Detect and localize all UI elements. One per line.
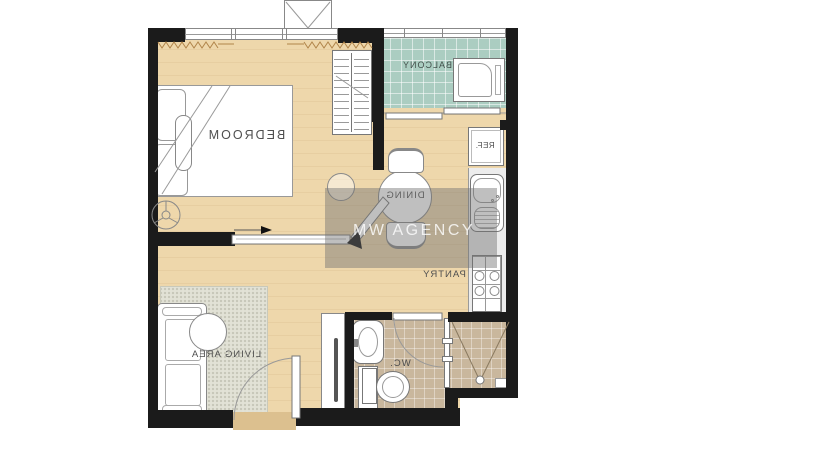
balcony-label: BALCONY: [396, 60, 458, 70]
living-area-label: LIVING AREA: [190, 349, 262, 360]
entrance-door-arc: [234, 358, 296, 420]
balcony-sliding-door-leaf: [444, 108, 500, 114]
floor-plan-page: REF.: [0, 0, 815, 465]
shower-slope-line: [481, 322, 509, 379]
stove-burner: [475, 272, 484, 281]
pantry-label: PANTRY: [420, 269, 468, 280]
fan-hub: [162, 211, 170, 219]
watermark-text: MW AGENCY: [353, 222, 475, 240]
ac-symbol-line: [308, 2, 330, 28]
slide-direction-arrow: [261, 226, 272, 234]
wc-label: WC.: [382, 358, 418, 369]
curtain-symbol: [304, 42, 372, 48]
stove-burner: [475, 287, 484, 296]
stove-burner: [490, 287, 499, 296]
wc-door-leaf: [393, 313, 442, 320]
ac-symbol-line: [286, 2, 308, 28]
shower-slope-line: [452, 322, 479, 379]
bedroom-label: BEDROOM: [200, 128, 292, 142]
balcony-sliding-door-leaf: [386, 113, 442, 119]
curtain-symbol: [158, 42, 218, 48]
fan-blade: [154, 218, 163, 223]
wardrobe-hanger-diagonal: [336, 76, 368, 98]
fan-blade: [169, 218, 178, 223]
entrance-door-leaf: [292, 356, 300, 418]
floor-plan: REF.: [140, 0, 530, 465]
shower-drain: [476, 376, 484, 384]
stove-burner: [490, 272, 499, 281]
watermark-band: MW AGENCY: [325, 188, 497, 268]
